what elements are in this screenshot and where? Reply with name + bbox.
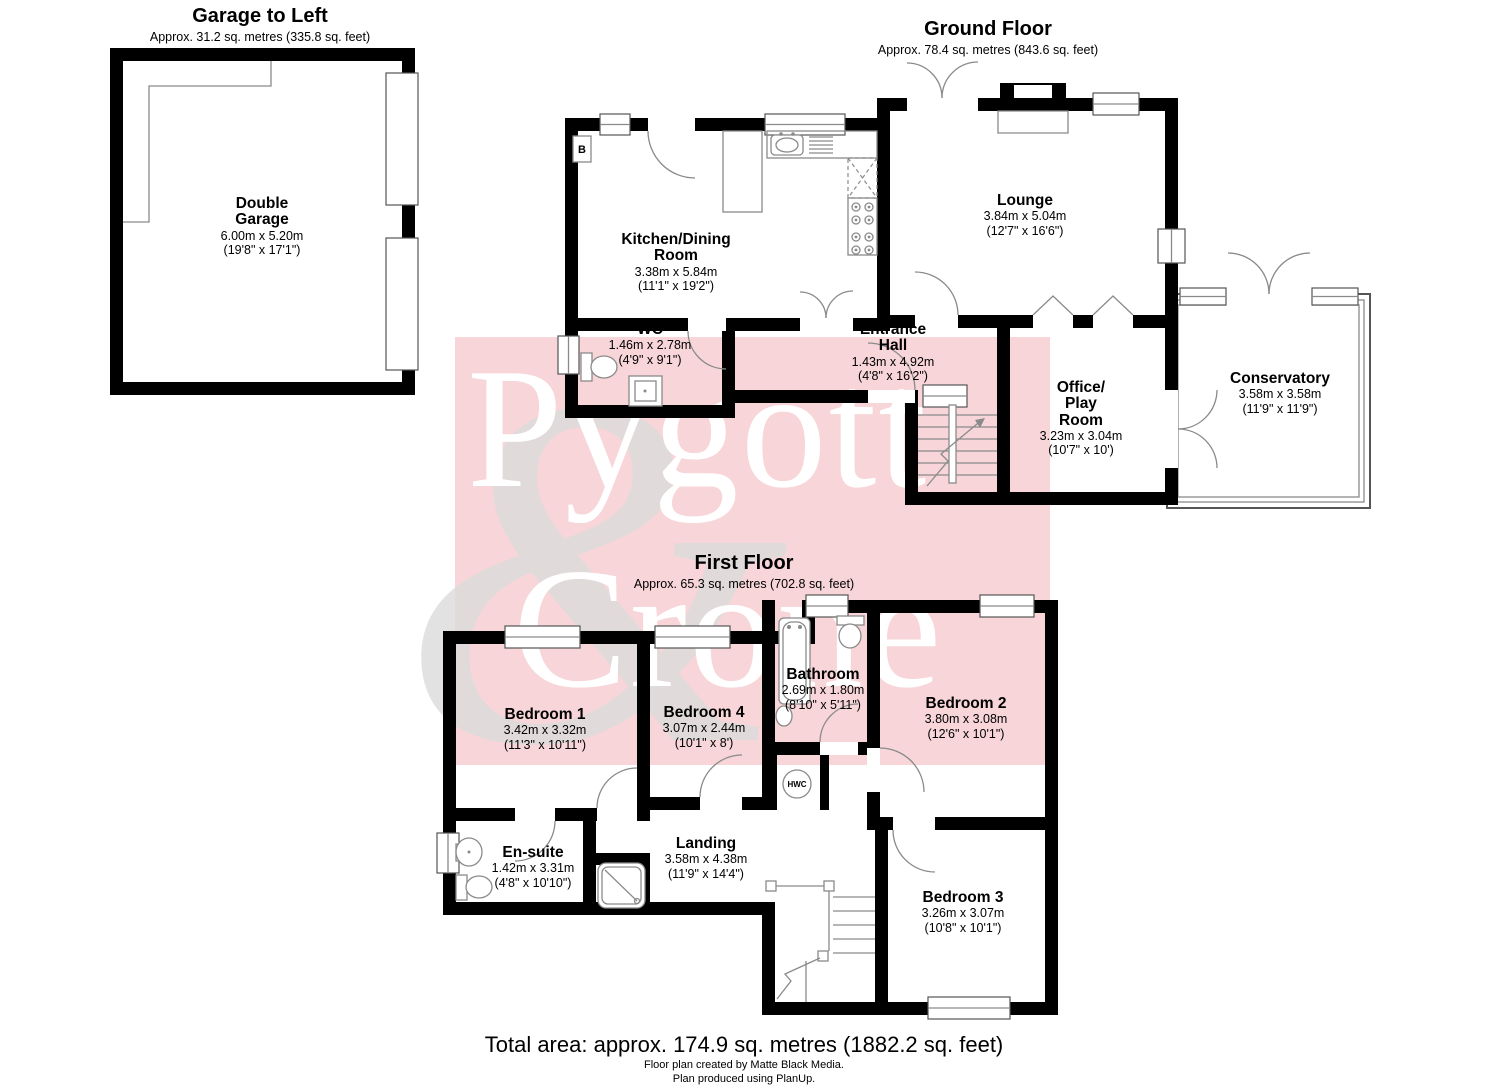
french-door-arc — [907, 63, 942, 98]
fireplace-hearth — [998, 111, 1068, 133]
garage-approx: Approx. 31.2 sq. metres (335.8 sq. feet) — [150, 30, 370, 44]
toilet-bowl — [466, 876, 492, 898]
credit-line-1: Floor plan created by Matte Black Media. — [485, 1058, 1004, 1072]
room-label-en-suite: En-suite 1.42m x 3.31m (4'8" x 10'10") — [492, 845, 575, 890]
kitchen-counter — [723, 131, 762, 212]
stair-post — [824, 881, 834, 891]
door-arc — [688, 331, 726, 369]
folding-door-chevron — [1033, 296, 1073, 315]
room-label-kitchen: Kitchen/Dining Room 3.38m x 5.84m (11'1"… — [621, 232, 730, 293]
footer: Total area: approx. 174.9 sq. metres (18… — [485, 1032, 1004, 1087]
room-label-office-play-room: Office/ Play Room 3.23m x 3.04m (10'7" x… — [1040, 380, 1123, 458]
door-arc — [880, 748, 924, 792]
room-label-bedroom-3: Bedroom 3 3.26m x 3.07m (10'8" x 10'1") — [922, 890, 1005, 935]
room-label-garage: Double Garage 6.00m x 5.20m (19'8" x 17'… — [221, 196, 304, 257]
door-arc — [1228, 253, 1269, 294]
door-arc — [1269, 253, 1310, 294]
garage-header: Garage to Left Approx. 31.2 sq. metres (… — [150, 5, 370, 44]
first-floor-approx: Approx. 65.3 sq. metres (702.8 sq. feet) — [634, 577, 854, 591]
ground-floor-stairs — [918, 405, 997, 486]
first-floor-walls — [443, 600, 1058, 1015]
toilet-bowl — [839, 624, 861, 648]
garage-door-upper — [386, 73, 418, 205]
door-arc — [597, 768, 637, 808]
room-label-bedroom-2: Bedroom 2 3.80m x 3.08m (12'6" x 10'1") — [925, 696, 1008, 741]
ground-floor-approx: Approx. 78.4 sq. metres (843.6 sq. feet) — [878, 43, 1098, 57]
door-arc — [700, 755, 742, 797]
hwc-label: HWC — [787, 780, 806, 789]
room-label-bedroom-4: Bedroom 4 3.07m x 2.44m (10'1" x 8') — [663, 705, 746, 750]
floorplan-drawing: B — [0, 0, 1500, 1091]
room-label-wc: WC 1.46m x 2.78m (4'9" x 9'1") — [609, 322, 692, 367]
room-label-lounge: Lounge 3.84m x 5.04m (12'7" x 16'6") — [984, 193, 1067, 238]
hob-burners — [852, 203, 873, 254]
ground-floor-title: Ground Floor — [878, 18, 1098, 41]
door-arc — [1178, 429, 1217, 468]
stair-direction-line — [777, 958, 820, 999]
boiler-label: B — [578, 144, 586, 156]
door-arc — [648, 131, 695, 178]
sink-drainer — [809, 137, 833, 153]
stair-post — [766, 881, 776, 891]
door-arc — [826, 291, 853, 318]
first-floor-stairs — [766, 881, 875, 1002]
room-label-conservatory: Conservatory 3.58m x 3.58m (11'9" x 11'9… — [1230, 371, 1330, 416]
room-label-bathroom: Bathroom 2.69m x 1.80m (8'10" x 5'11") — [782, 667, 865, 712]
folding-door-chevron — [1093, 296, 1133, 315]
total-area: Total area: approx. 174.9 sq. metres (18… — [485, 1032, 1004, 1058]
room-label-bedroom-1: Bedroom 1 3.42m x 3.32m (11'3" x 10'11") — [504, 707, 587, 752]
door-arc — [1178, 390, 1217, 429]
stair-post — [818, 951, 828, 961]
hwc-closet-wall — [768, 755, 777, 810]
hwc-closet-wall — [820, 755, 829, 810]
door-arc — [915, 272, 958, 315]
room-label-entrance-hall: Entrance Hall 1.43m x 4.92m (4'8" x 16'2… — [852, 322, 935, 383]
first-floor-title: First Floor — [634, 552, 854, 575]
credit-line-2: Plan produced using PlanUp. — [485, 1072, 1004, 1086]
first-floor-header: First Floor Approx. 65.3 sq. metres (702… — [634, 552, 854, 591]
toilet-cistern — [456, 875, 467, 900]
door-arc — [893, 830, 935, 872]
floorplan-page: & Pygott Crone — [0, 0, 1500, 1091]
garage-title: Garage to Left — [150, 5, 370, 28]
garage-door-lower — [386, 238, 418, 370]
door-arc — [800, 292, 826, 318]
ground-floor-header: Ground Floor Approx. 78.4 sq. metres (84… — [878, 18, 1098, 57]
room-label-landing: Landing 3.58m x 4.38m (11'9" x 14'4") — [665, 836, 748, 881]
french-door-arc — [942, 62, 978, 98]
